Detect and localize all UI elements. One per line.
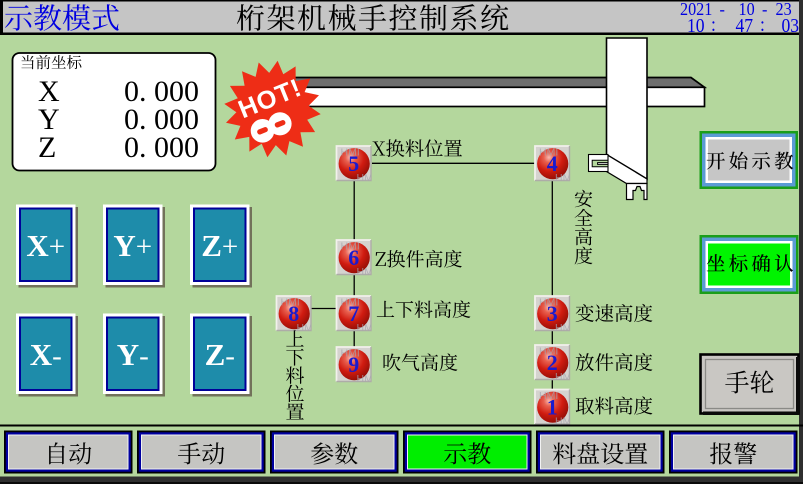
svg-text:HMI: HMI xyxy=(539,390,558,402)
svg-text:HMI: HMI xyxy=(341,147,360,159)
svg-text:X-: X- xyxy=(30,337,62,372)
svg-text::: : xyxy=(760,14,765,36)
svg-text:-: - xyxy=(720,0,726,19)
svg-text:Z+: Z+ xyxy=(201,228,238,263)
svg-text:HMI: HMI xyxy=(539,297,558,309)
svg-text:Y-: Y- xyxy=(117,337,149,372)
svg-text:Z-: Z- xyxy=(205,337,235,372)
svg-text:HMI: HMI xyxy=(539,346,558,358)
svg-text:Z: Z xyxy=(38,131,56,164)
svg-text:HMI: HMI xyxy=(281,297,300,309)
svg-text:Y+: Y+ xyxy=(113,228,152,263)
svg-text::: : xyxy=(711,14,716,36)
svg-text:X+: X+ xyxy=(26,228,65,263)
svg-text:03: 03 xyxy=(782,15,800,37)
svg-text:47: 47 xyxy=(736,15,754,37)
svg-text:HMI: HMI xyxy=(341,241,360,253)
svg-text:10: 10 xyxy=(687,15,705,37)
svg-text:HMI: HMI xyxy=(341,297,360,309)
svg-text:0. 000: 0. 000 xyxy=(124,131,199,164)
svg-text:HMI: HMI xyxy=(539,147,558,159)
svg-text:HMI: HMI xyxy=(341,348,360,360)
